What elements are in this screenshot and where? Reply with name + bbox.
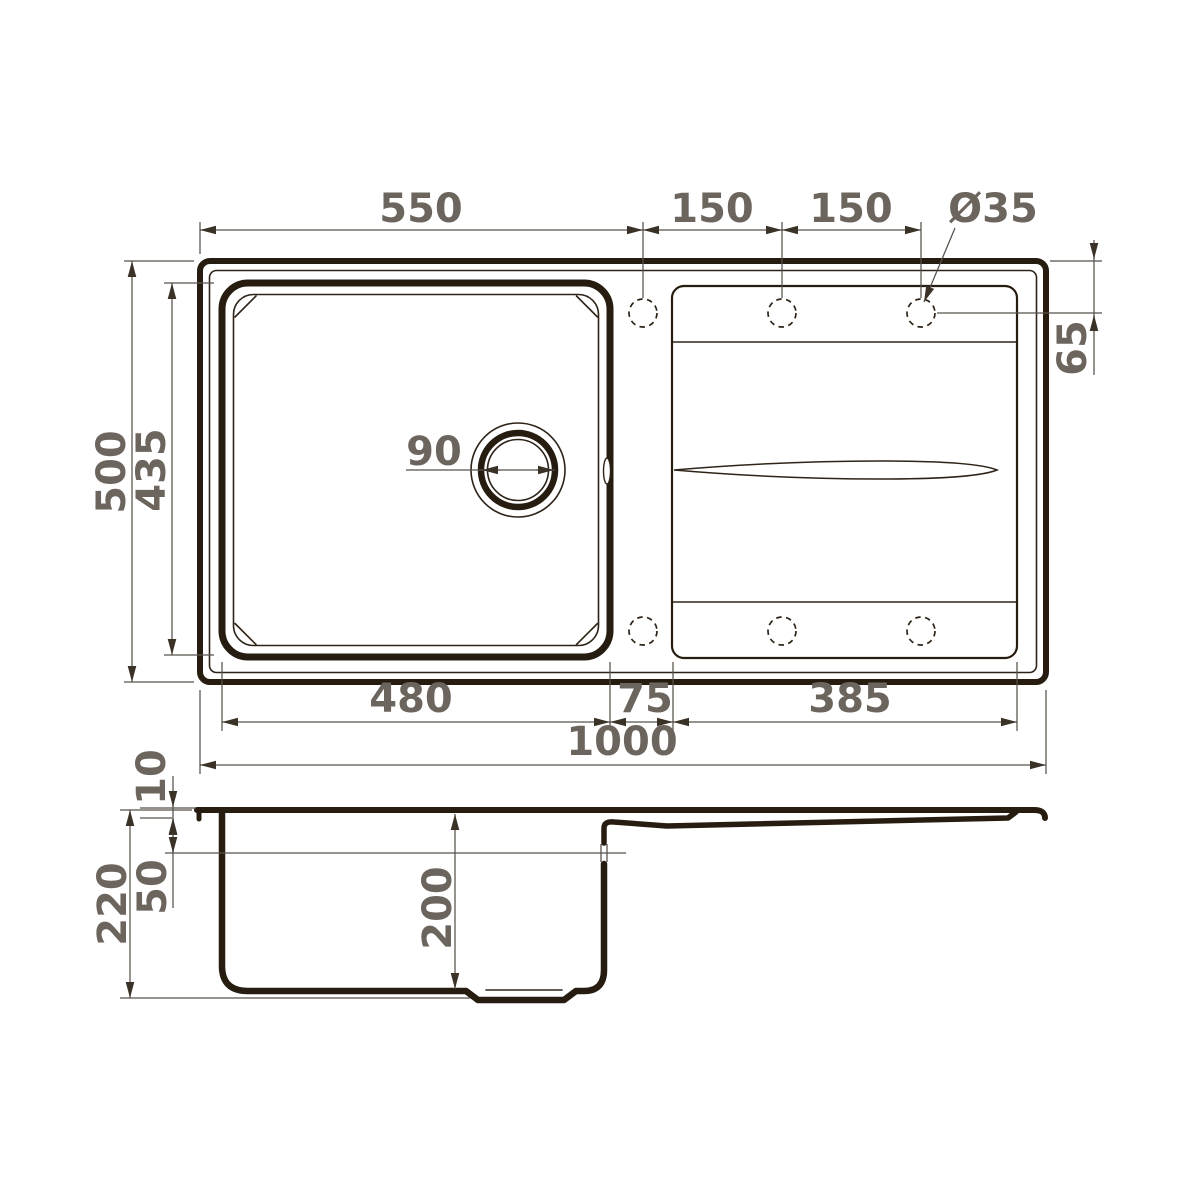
side-profile <box>120 810 1045 1000</box>
dim-hole-pitch-b: 150 <box>809 186 893 232</box>
dim-drain-diameter: 90 <box>406 429 462 475</box>
counter-top-line <box>197 810 1045 818</box>
dim-bowl-depth: 200 <box>415 866 461 950</box>
top-view: 550 150 150 Ø35 500 435 90 65 480 75 385… <box>89 186 1102 774</box>
dim-rim-height: 10 <box>129 749 175 805</box>
dim-ledge-depth: 50 <box>130 859 176 915</box>
bowl-corner-chamfer <box>577 624 598 645</box>
dim-bowl-depth-outer: 435 <box>129 428 175 512</box>
hole-diameter-leader <box>924 228 955 302</box>
dim-overall-height: 220 <box>90 862 136 946</box>
dim-hole-offset-from-edge: 65 <box>1050 320 1096 376</box>
dim-tap-hole-diameter: Ø35 <box>948 186 1038 232</box>
bowl-corner-chamfer <box>235 296 256 317</box>
tap-hole <box>768 617 796 645</box>
drainboard <box>672 286 1017 658</box>
dim-hole-pitch-a: 150 <box>670 186 754 232</box>
overflow-mark <box>604 458 611 484</box>
dim-edge-to-first-hole: 550 <box>379 186 463 232</box>
tap-hole <box>907 299 935 327</box>
dim-gap-bowl-to-drainboard: 75 <box>617 676 673 722</box>
bowl-corner-chamfer <box>577 296 598 317</box>
bowl-profile <box>222 812 604 1000</box>
tap-hole <box>629 299 657 327</box>
tap-hole <box>768 299 796 327</box>
tap-hole <box>907 617 935 645</box>
bowl-corner-chamfer <box>235 624 256 645</box>
drainboard-groove <box>674 461 997 479</box>
sink-technical-drawing: 550 150 150 Ø35 500 435 90 65 480 75 385… <box>0 0 1200 1200</box>
dim-bowl-width: 480 <box>369 676 453 722</box>
side-view: 10 50 220 200 <box>90 749 1045 1000</box>
tap-hole <box>629 617 657 645</box>
dim-drainboard-width: 385 <box>808 676 892 722</box>
drainboard-profile <box>604 812 1016 843</box>
dim-overall-length: 1000 <box>566 719 677 765</box>
